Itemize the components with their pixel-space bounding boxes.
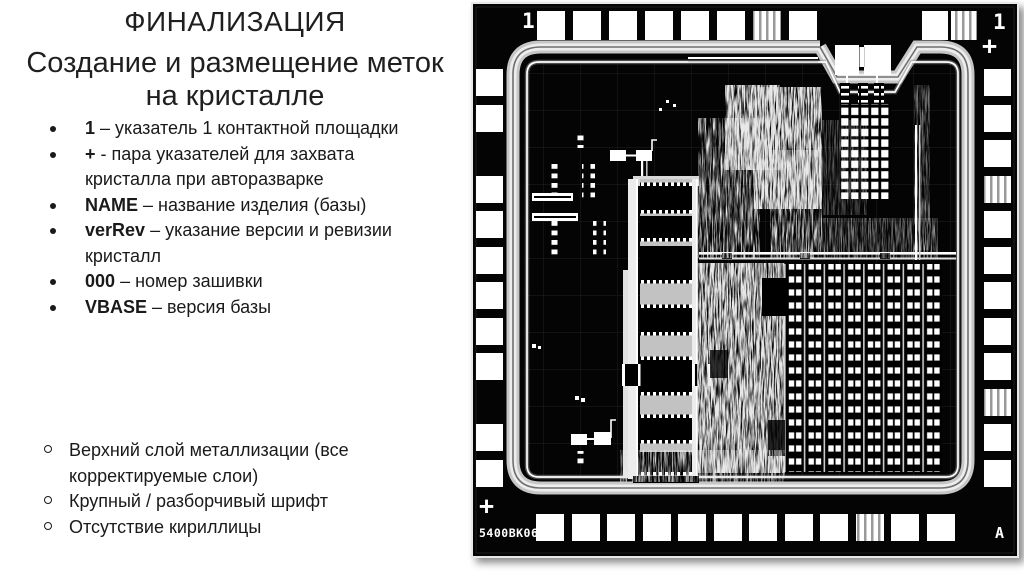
label-description: – номер зашивки [120, 271, 263, 291]
list-item: NAME – название изделия (базы) [45, 193, 430, 219]
label-description: - пара указателей для захвата кристалла … [85, 144, 354, 190]
subtitle-line-1: Создание и размещение меток [26, 47, 443, 79]
list-item: Крупный / разборчивый шрифт [42, 489, 369, 515]
die-mark-bottom-right: A [995, 524, 1004, 542]
list-item: 1 – указатель 1 контактной площадки [45, 116, 430, 142]
label-term: VBASE [85, 297, 147, 317]
requirements-list: Верхний слой металлизации (все корректир… [42, 438, 369, 540]
label-term: verRev [85, 220, 145, 240]
die-labels-list: 1 – указатель 1 контактной площадки + - … [45, 116, 430, 320]
list-item: Отсутствие кириллицы [42, 515, 369, 541]
page-title: ФИНАЛИЗАЦИЯ [0, 6, 470, 38]
die-part-number: 5400BK06 [479, 526, 538, 540]
label-term: + [85, 144, 96, 164]
chip-die-photo: 1 1 + + 5400BK06 A [470, 0, 1024, 574]
label-description: – указатель 1 контактной площадки [100, 118, 398, 138]
list-item: verRev – указание версии и ревизии крист… [45, 218, 430, 269]
list-item: 000 – номер зашивки [45, 269, 430, 295]
requirement-text: Верхний слой металлизации (все корректир… [69, 440, 349, 486]
subtitle-line-2: на кристалле [146, 80, 325, 112]
label-description: – название изделия (базы) [143, 195, 366, 215]
die-mark-bottom-left-plus: + [479, 491, 494, 520]
slide-subtitle: Создание и размещение метокна кристалле [0, 47, 470, 113]
label-description: – версия базы [152, 297, 271, 317]
slide-text-panel: ФИНАЛИЗАЦИЯ Создание и размещение метокн… [0, 0, 470, 574]
list-item: Верхний слой металлизации (все корректир… [42, 438, 369, 489]
label-term: 000 [85, 271, 115, 291]
chip-die-image: 1 1 + + 5400BK06 A [470, 0, 1024, 574]
label-term: NAME [85, 195, 138, 215]
presentation-slide: ФИНАЛИЗАЦИЯ Создание и размещение метокн… [0, 0, 1024, 574]
die-mark-top-right-plus: + [982, 31, 997, 60]
label-term: 1 [85, 118, 95, 138]
requirement-text: Крупный / разборчивый шрифт [69, 491, 328, 511]
requirement-text: Отсутствие кириллицы [69, 517, 261, 537]
list-item: + - пара указателей для захвата кристалл… [45, 142, 430, 193]
die-mark-pad1: 1 [522, 9, 535, 33]
list-item: VBASE – версия базы [45, 295, 430, 321]
